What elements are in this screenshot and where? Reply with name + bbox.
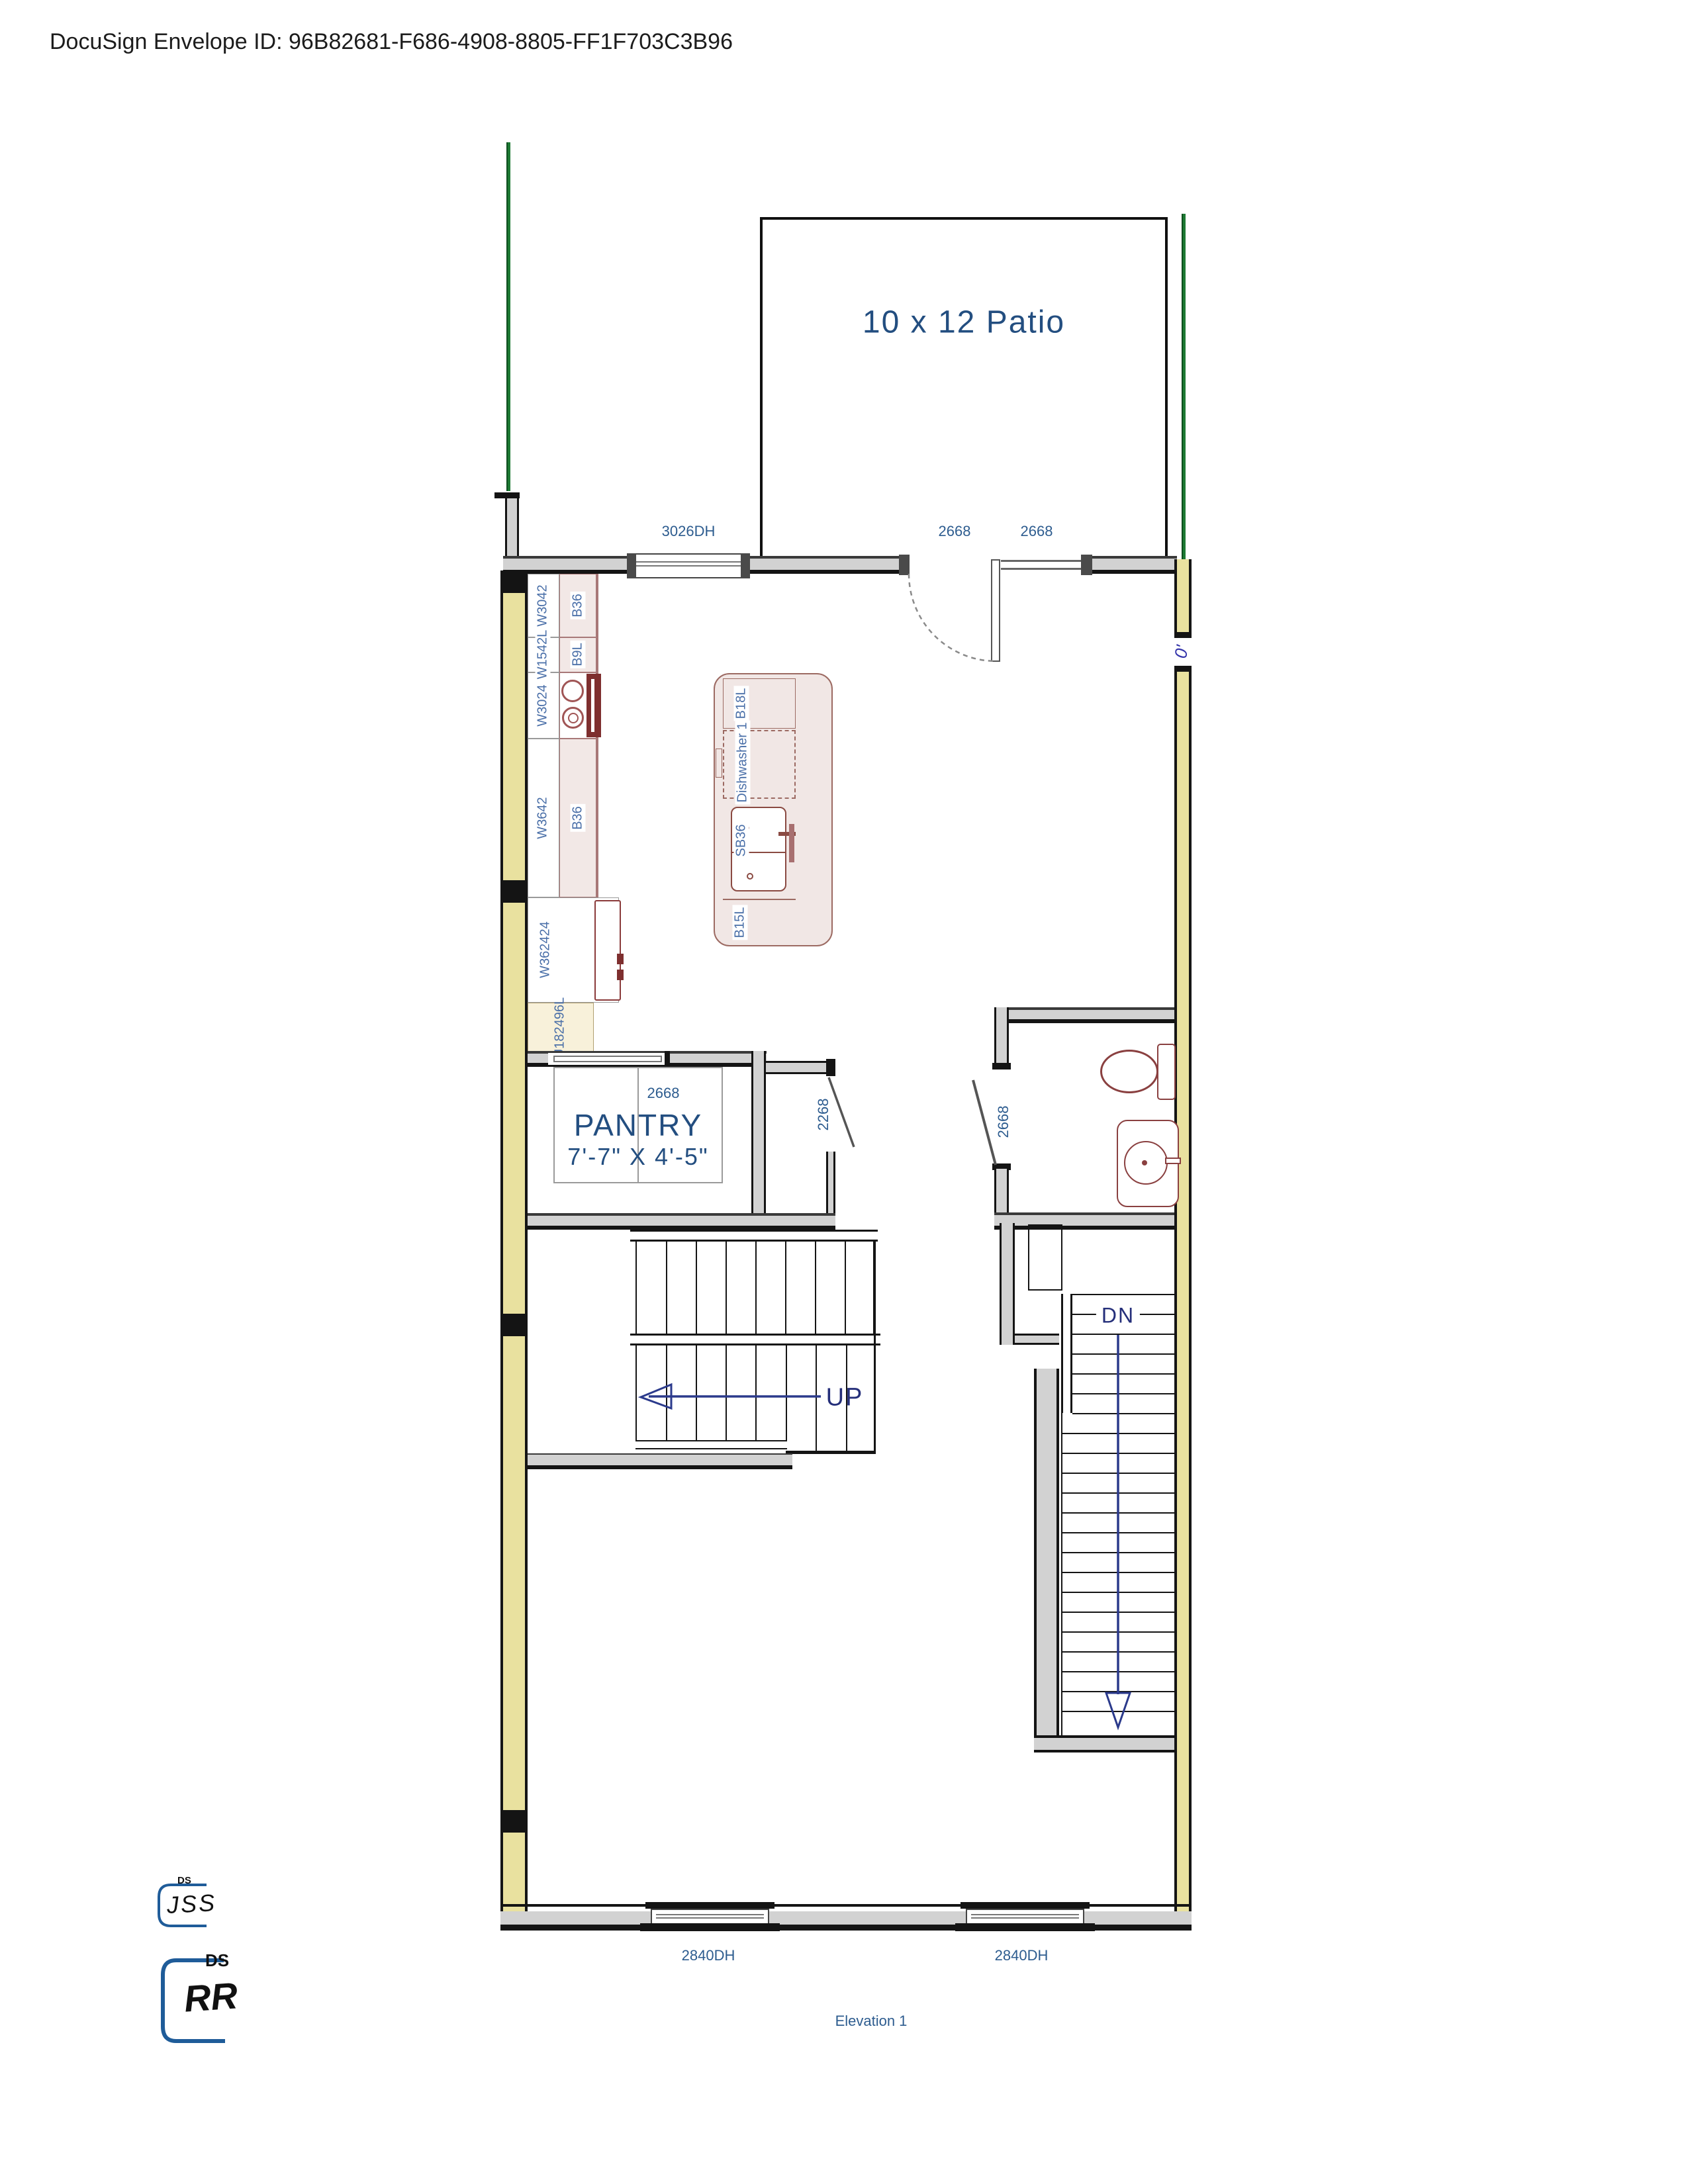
label-w1542l: W1542L <box>536 628 551 682</box>
up-stairs-top-nosing <box>630 1230 878 1242</box>
closet-top-wall <box>766 1061 831 1074</box>
refrigerator-handle-2 <box>617 970 624 980</box>
burner-2-inner <box>568 713 579 723</box>
stair-tread <box>696 1242 697 1334</box>
up-stairs-bottom-edge <box>786 1451 876 1454</box>
stair-tread <box>1072 1393 1174 1394</box>
bath-top-wall <box>994 1007 1174 1023</box>
closet-door-label: 2268 <box>815 1099 832 1131</box>
stair-tread <box>1062 1592 1174 1593</box>
window-2840-left-sash <box>656 1914 764 1919</box>
right-wall-break-bottom <box>1174 666 1192 672</box>
window-2840-left-bar-bottom <box>640 1923 780 1931</box>
stair-tread <box>1062 1473 1174 1474</box>
stair-tread <box>1062 1572 1174 1573</box>
kitchen-island <box>714 673 833 946</box>
dn-stairs-handrail <box>1061 1294 1072 1413</box>
label-b36-lower: B36 <box>571 804 586 832</box>
stair-tread <box>1062 1612 1174 1613</box>
label-w3024: W3024 <box>536 682 551 728</box>
stamp-small-ds-badge: DS <box>177 1875 191 1886</box>
patio-door-label: 2668 <box>939 523 971 540</box>
toilet-bowl <box>1100 1050 1158 1093</box>
island-dishwasher-latch <box>716 749 722 778</box>
pantry-size: 7'-7" X 4'-5" <box>567 1143 708 1171</box>
dn-stairs-bottom-wall <box>1034 1735 1174 1752</box>
stair-tread <box>755 1242 757 1334</box>
label-b36-upper: B36 <box>571 592 586 619</box>
stamp-small-initials: JSS <box>166 1889 217 1919</box>
patio-door-leaf <box>991 559 1000 662</box>
window-3026dh-frame-left <box>627 553 636 578</box>
up-stairs-landing <box>630 1334 880 1345</box>
top-wall-seg-3 <box>1092 556 1177 574</box>
label-w362424: W362424 <box>538 919 553 980</box>
closet-door-leaf <box>829 1077 854 1147</box>
toilet-tank <box>1157 1044 1176 1100</box>
closet-right-wall <box>826 1152 835 1215</box>
left-wall-break-2 <box>500 880 528 903</box>
patio-door-swing-arc <box>909 574 996 661</box>
chase-wall-stub <box>1000 1223 1015 1345</box>
document-page: DocuSign Envelope ID: 96B82681-F686-4908… <box>0 0 1688 2184</box>
pantry-bottom-wall <box>528 1213 835 1230</box>
refrigerator-handle-1 <box>617 954 624 964</box>
island-faucet-base <box>789 824 794 862</box>
bath-sink-drain <box>1142 1160 1147 1165</box>
bath-left-wall-upper <box>994 1007 1009 1068</box>
pantry-right-wall <box>751 1051 766 1228</box>
up-stairs-lower-nosing <box>635 1440 787 1449</box>
dn-stairs-left-wall <box>1034 1369 1059 1752</box>
label-dishwasher: Dishwasher 1 <box>735 720 751 804</box>
stair-tread <box>726 1345 727 1440</box>
stair-tread <box>1062 1512 1174 1514</box>
left-exterior-wall <box>500 570 528 1931</box>
elevation-caption: Elevation 1 <box>835 2013 908 2030</box>
up-stairs-lower-flight <box>635 1345 787 1440</box>
pantry-name: PANTRY <box>574 1107 702 1143</box>
refrigerator-outline <box>594 900 621 1001</box>
patio-outline <box>760 217 1168 557</box>
chase-box <box>1028 1224 1062 1291</box>
stair-tread <box>1072 1353 1174 1355</box>
patio-door-jamb-left <box>899 555 910 575</box>
island-dishwasher-box <box>723 730 796 799</box>
closet-jamb-top <box>826 1059 835 1076</box>
stair-tread <box>1062 1453 1174 1454</box>
window-2840-left-bar-top <box>645 1902 774 1909</box>
window-2840-right-bar-bottom <box>955 1923 1095 1931</box>
property-line-left <box>506 142 510 491</box>
stair-hall-bottom-wall <box>528 1453 792 1469</box>
stair-tread <box>1072 1373 1174 1375</box>
island-section-line <box>723 899 796 900</box>
up-label: UP <box>826 1384 864 1412</box>
dn-label: DN <box>1096 1304 1140 1328</box>
bath-door-label: 2668 <box>995 1106 1012 1138</box>
left-wall-break-3 <box>500 1314 528 1336</box>
left-wall-break-4 <box>500 1810 528 1833</box>
stair-tread <box>1062 1711 1174 1712</box>
up-stairs-upper-flight <box>635 1242 875 1334</box>
patio-opening-label: 2668 <box>1021 523 1053 540</box>
stair-tread <box>696 1345 697 1440</box>
patio-opening-head <box>1001 560 1081 570</box>
label-w3042: W3042 <box>536 582 551 628</box>
window-2840-left-label: 2840DH <box>682 1947 735 1964</box>
stair-tread <box>1062 1532 1174 1533</box>
stair-tread <box>755 1345 757 1440</box>
stair-tread <box>1062 1651 1174 1653</box>
right-wall-break-top <box>1174 632 1192 638</box>
label-w3642: W3642 <box>536 795 551 841</box>
stair-tread <box>785 1242 786 1334</box>
chase-bottom-wall <box>1015 1334 1059 1345</box>
bath-bottom-wall <box>994 1212 1174 1230</box>
dn-stairs-lower-treads <box>1061 1413 1174 1735</box>
island-sink-drain-2 <box>747 873 753 880</box>
stair-tread <box>1062 1492 1174 1494</box>
window-2840-right-bar-top <box>961 1902 1090 1909</box>
stair-tread <box>1062 1631 1174 1633</box>
label-b15l: B15L <box>733 905 748 940</box>
top-wall-seg-2 <box>750 556 899 574</box>
stair-tread <box>666 1242 667 1334</box>
stair-tread <box>1062 1552 1174 1553</box>
property-line-right <box>1182 214 1186 574</box>
pantry-pocket-door-slab <box>553 1056 662 1062</box>
window-3026dh-label: 3026DH <box>662 523 716 540</box>
burner-1 <box>561 680 584 702</box>
stair-tread <box>845 1242 846 1334</box>
stair-tread <box>1062 1671 1174 1672</box>
stamp-large-initials: RR <box>183 1974 239 2020</box>
stair-tread <box>1072 1334 1174 1335</box>
bath-door-jamb-top <box>992 1063 1011 1069</box>
bath-sink-faucet <box>1165 1158 1181 1164</box>
stair-tread <box>815 1242 816 1334</box>
window-3026dh-sash <box>636 561 741 567</box>
window-2840-right-label: 2840DH <box>995 1947 1049 1964</box>
stair-tread <box>1062 1691 1174 1692</box>
stair-tread <box>1062 1433 1174 1434</box>
patio-label: 10 x 12 Patio <box>863 304 1065 341</box>
pantry-door-stop <box>665 1051 670 1067</box>
up-stairs-divider-1 <box>816 1345 817 1453</box>
up-stairs-right-edge <box>874 1242 876 1454</box>
right-exterior-wall <box>1174 559 1192 1931</box>
stair-tread <box>726 1242 727 1334</box>
label-b9l: B9L <box>571 641 586 668</box>
left-wall-break-1 <box>500 570 528 593</box>
label-b18l: B18L <box>734 686 749 721</box>
range-body-slot <box>591 679 594 732</box>
stair-tread <box>666 1345 667 1440</box>
bath-door-leaf <box>973 1080 996 1165</box>
docusign-envelope-id: DocuSign Envelope ID: 96B82681-F686-4908… <box>50 29 733 55</box>
stamp-large-ds-badge: DS <box>205 1950 229 1971</box>
corner-post <box>494 492 520 498</box>
patio-opening-jamb-right <box>1081 555 1092 575</box>
corner-wall-stub <box>505 498 519 558</box>
window-2840-right-sash <box>971 1914 1079 1919</box>
window-3026dh-frame-right <box>741 553 750 578</box>
label-sb36: SB36 <box>734 823 749 859</box>
